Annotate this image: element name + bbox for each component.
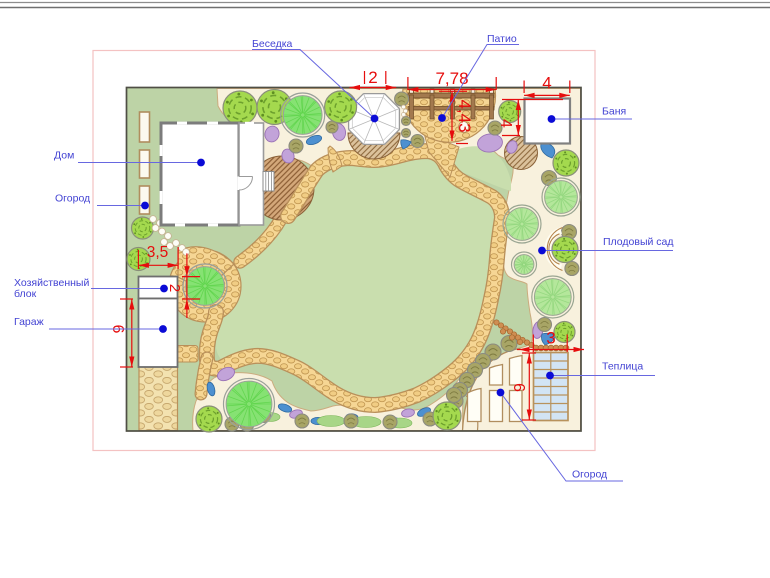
svg-text:Плодовый сад: Плодовый сад	[603, 236, 674, 248]
svg-text:Огород: Огород	[572, 469, 607, 481]
svg-text:Дом: Дом	[54, 150, 74, 162]
svg-text:4,43: 4,43	[455, 99, 474, 132]
svg-text:2: 2	[368, 68, 377, 87]
svg-text:Теплица: Теплица	[602, 361, 643, 373]
svg-text:7,78: 7,78	[435, 69, 468, 88]
svg-text:Баня: Баня	[602, 106, 626, 118]
svg-text:3,5: 3,5	[147, 244, 169, 261]
svg-text:Огород: Огород	[55, 193, 90, 205]
svg-text:4: 4	[497, 119, 514, 128]
svg-text:4: 4	[542, 74, 551, 93]
svg-text:Патио: Патио	[487, 33, 517, 45]
svg-text:Беседка: Беседка	[252, 38, 293, 50]
svg-text:6: 6	[510, 383, 527, 392]
svg-text:Гараж: Гараж	[14, 316, 44, 328]
svg-text:блок: блок	[14, 288, 37, 300]
svg-text:3: 3	[546, 329, 555, 348]
svg-text:2: 2	[166, 284, 183, 292]
